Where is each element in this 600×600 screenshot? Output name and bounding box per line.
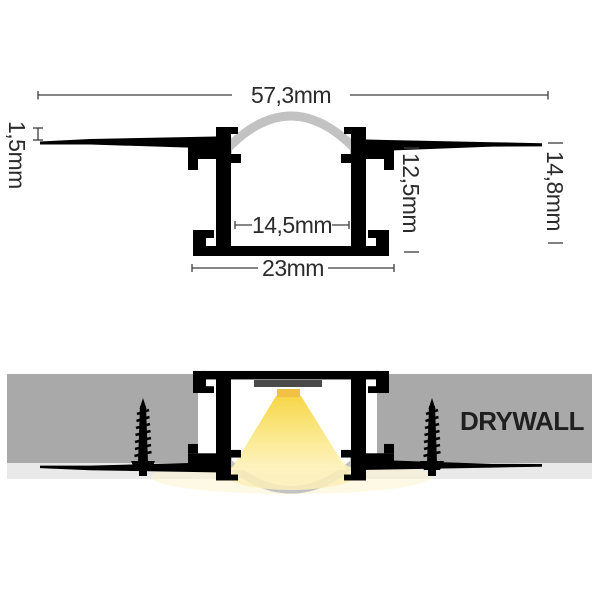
led-chip	[277, 389, 300, 397]
drywall-left-panel	[7, 374, 198, 463]
dimension-total-height-label: 14,8mm	[542, 151, 568, 231]
dimension-inner-depth-label: 12,5mm	[398, 153, 424, 233]
dimension-flange-thickness: 1,5mm	[4, 121, 43, 189]
dimension-flange-thickness-label: 1,5mm	[4, 121, 30, 189]
dimension-inner-width: 14,5mm	[235, 212, 349, 238]
dimension-total-width: 57,3mm	[38, 82, 548, 108]
dimension-total-height: 14,8mm	[542, 143, 568, 243]
dimension-base-width: 23mm	[192, 255, 394, 281]
dimension-base-width-label: 23mm	[262, 255, 324, 281]
diffuser-cover	[220, 116, 362, 163]
drywall-label: DRYWALL	[460, 406, 585, 436]
led-profile-datasheet: 57,3mm 1,5mm 14,5mm	[0, 0, 600, 600]
installation-drawing: DRYWALL	[7, 371, 592, 494]
led-strip-pcb	[254, 380, 322, 387]
dimension-inner-depth: 12,5mm	[398, 148, 424, 252]
dimension-inner-width-label: 14,5mm	[252, 212, 332, 238]
dimension-total-width-label: 57,3mm	[251, 82, 331, 108]
led-profile-diagram: 57,3mm 1,5mm 14,5mm	[0, 0, 600, 600]
profile-cross-section-drawing: 57,3mm 1,5mm 14,5mm	[4, 82, 568, 281]
